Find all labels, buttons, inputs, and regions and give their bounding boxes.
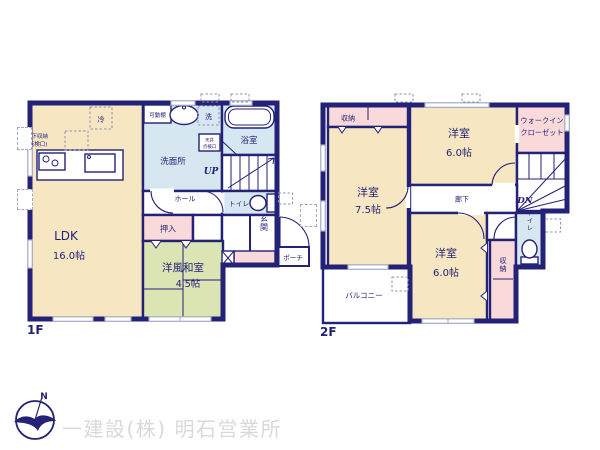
- compass-needle: [14, 415, 56, 431]
- kitchen-counter: [37, 150, 123, 180]
- door-gap: [492, 183, 515, 187]
- hatch-label1: 天井: [205, 137, 214, 144]
- toilet-icon-2f: [521, 240, 538, 264]
- floor1-plan: 冷 床下収納 (点検口) 可動棚 洗 天井 点検口: [25, 93, 310, 328]
- ldk-name: LDK: [54, 229, 79, 243]
- shoe-cabinet: [234, 251, 275, 264]
- fridge-label: 冷: [97, 114, 105, 124]
- stairs-up-label: UP: [204, 167, 219, 177]
- room-60-top: [410, 105, 517, 185]
- room-60-bottom: [410, 213, 487, 321]
- hall-nook: [193, 215, 222, 241]
- room60a-size: 6.0帖: [446, 146, 472, 159]
- laundry-label: 洗: [205, 112, 212, 121]
- room60a-name: 洋室: [448, 126, 470, 140]
- room75-size: 7.5帖: [355, 203, 381, 216]
- wic-label1: ウォークイン: [520, 116, 563, 125]
- ldk-size: 16.0帖: [53, 249, 85, 262]
- ac-unit-box: [17, 189, 33, 210]
- toilet-label-1f: トイレ: [229, 200, 250, 208]
- room75-name: 洋室: [357, 185, 379, 199]
- ac-unit-box: [300, 204, 317, 227]
- entrance-label: 玄関: [260, 213, 269, 232]
- porch-label: ポーチ: [283, 254, 303, 262]
- floor1-label: 1F: [27, 323, 44, 337]
- room60b-name: 洋室: [435, 246, 457, 260]
- movable-shelf: 可動棚: [144, 105, 171, 123]
- stairs-down-label: DN: [516, 196, 533, 206]
- ceiling-hatch: 天井 点検口: [199, 134, 220, 151]
- door-gap: [515, 125, 519, 143]
- wic-label2: クローゼット: [520, 128, 563, 137]
- floor2-plan: 収納 洋室 7.5帖 洋室 6.0帖 ウォークイン クローゼット 廊下 DN 洋…: [318, 93, 573, 328]
- washroom-label: 洗面所: [160, 156, 186, 167]
- washitsu-name: 洋風和室: [162, 261, 204, 274]
- corridor-label: 廊下: [455, 195, 469, 204]
- room60b-size: 6.0帖: [433, 266, 459, 279]
- floorplan-canvas: 冷 床下収納 (点検口) 可動棚 洗 天井 点検口: [0, 0, 600, 450]
- oshiire-label: 押入: [160, 224, 176, 234]
- ac-unit-box: [17, 127, 32, 150]
- hatch-label2: 点検口: [203, 143, 217, 150]
- compass-icon: N: [10, 390, 62, 444]
- storage-label-tl: 収納: [341, 114, 355, 123]
- company-name: 一建設(株) 明石営業所: [62, 413, 282, 442]
- storage-bottomright: [490, 240, 516, 321]
- storage-label-br: 収納: [499, 257, 507, 273]
- toilet-label-2f: トイレ: [526, 210, 533, 232]
- washbasin-icon: [170, 106, 198, 125]
- door-gap: [150, 189, 174, 194]
- compass-north-label: N: [40, 392, 48, 402]
- shelf-label: 可動棚: [149, 111, 166, 119]
- hall-label: ホール: [175, 195, 196, 203]
- washitsu-size: 4.5帖: [176, 278, 201, 290]
- balcony-label: バルコニー: [345, 291, 382, 300]
- floor2-label: 2F: [320, 325, 337, 339]
- toilet-icon-1f: [250, 194, 276, 212]
- bath-label: 浴室: [240, 135, 258, 146]
